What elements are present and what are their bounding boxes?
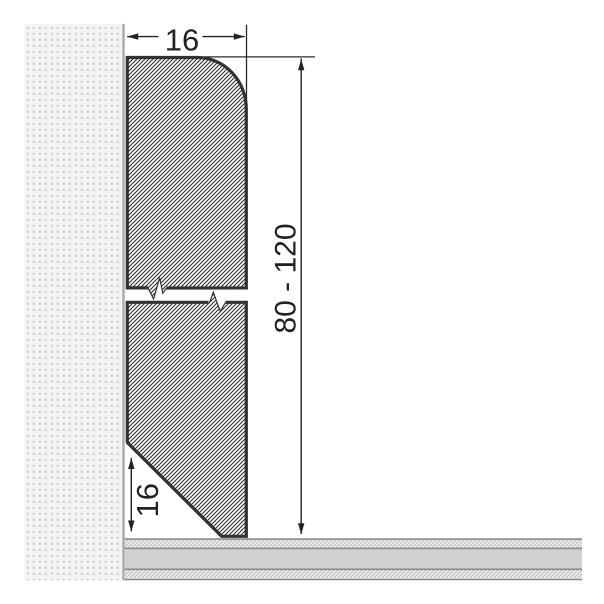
svg-text:16: 16 (130, 483, 165, 517)
svg-text:80 - 120: 80 - 120 (269, 223, 302, 333)
svg-text:16: 16 (165, 23, 199, 58)
